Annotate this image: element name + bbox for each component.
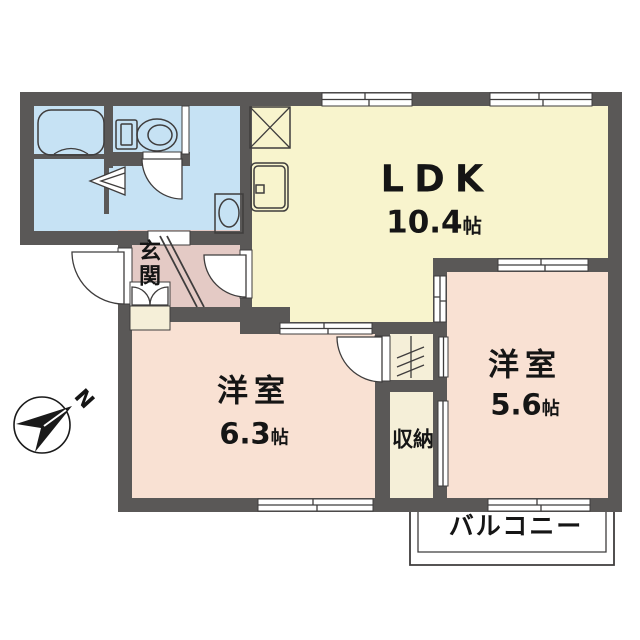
closet-door-storage	[438, 401, 448, 486]
storage-label: 収納	[392, 430, 434, 451]
wall-left-upper	[20, 92, 34, 245]
wall-toilet-bottom	[107, 152, 145, 166]
entrance-door-swing	[72, 252, 124, 304]
closet-door-upper	[439, 337, 448, 377]
bedroom-left-label: 洋室	[211, 377, 291, 408]
bedroom-right-floor	[433, 258, 622, 512]
toilet-partition	[182, 106, 189, 154]
sliding-door-ldk-bedroom-right	[434, 276, 446, 322]
floor-plan: LDK 10.4帖 洋室 6.3帖 洋室 5.6帖 玄関 収納 バルコニー N	[0, 0, 640, 640]
shoe-cabinet-icon	[130, 282, 170, 330]
window-bedroom-right-top	[498, 259, 588, 271]
sliding-door-ldk-bedroom-left	[280, 323, 372, 334]
wall-closet-divider	[387, 380, 447, 392]
bedroom-left-area: 6.3帖	[219, 420, 288, 449]
window-bedroom-left-bottom	[258, 499, 373, 511]
bedroom-right-area: 5.6帖	[490, 391, 559, 420]
ldk-area-unit: 帖	[463, 215, 482, 238]
wall-right	[608, 92, 622, 512]
floor-plan-drawing	[0, 0, 640, 640]
bedroom-left-area-value: 6.3	[219, 417, 270, 451]
window-bedroom-right-bottom	[488, 499, 590, 511]
window-top-left	[322, 93, 412, 106]
wall-washroom-bottom	[20, 231, 246, 245]
bedroom-left-area-unit: 帖	[271, 428, 289, 449]
window-top-right	[490, 93, 592, 106]
entrance-label: 玄関	[136, 239, 158, 289]
ldk-label: LDK	[371, 161, 494, 198]
ldk-area-value: 10.4	[386, 205, 463, 241]
bedroom-right-area-value: 5.6	[490, 388, 541, 422]
balcony-label: バルコニー	[449, 514, 584, 539]
bedroom-right-label: 洋室	[482, 351, 562, 382]
bedroom-right-area-unit: 帖	[542, 399, 560, 420]
compass-icon	[14, 397, 72, 453]
ldk-area: 10.4帖	[386, 208, 482, 239]
